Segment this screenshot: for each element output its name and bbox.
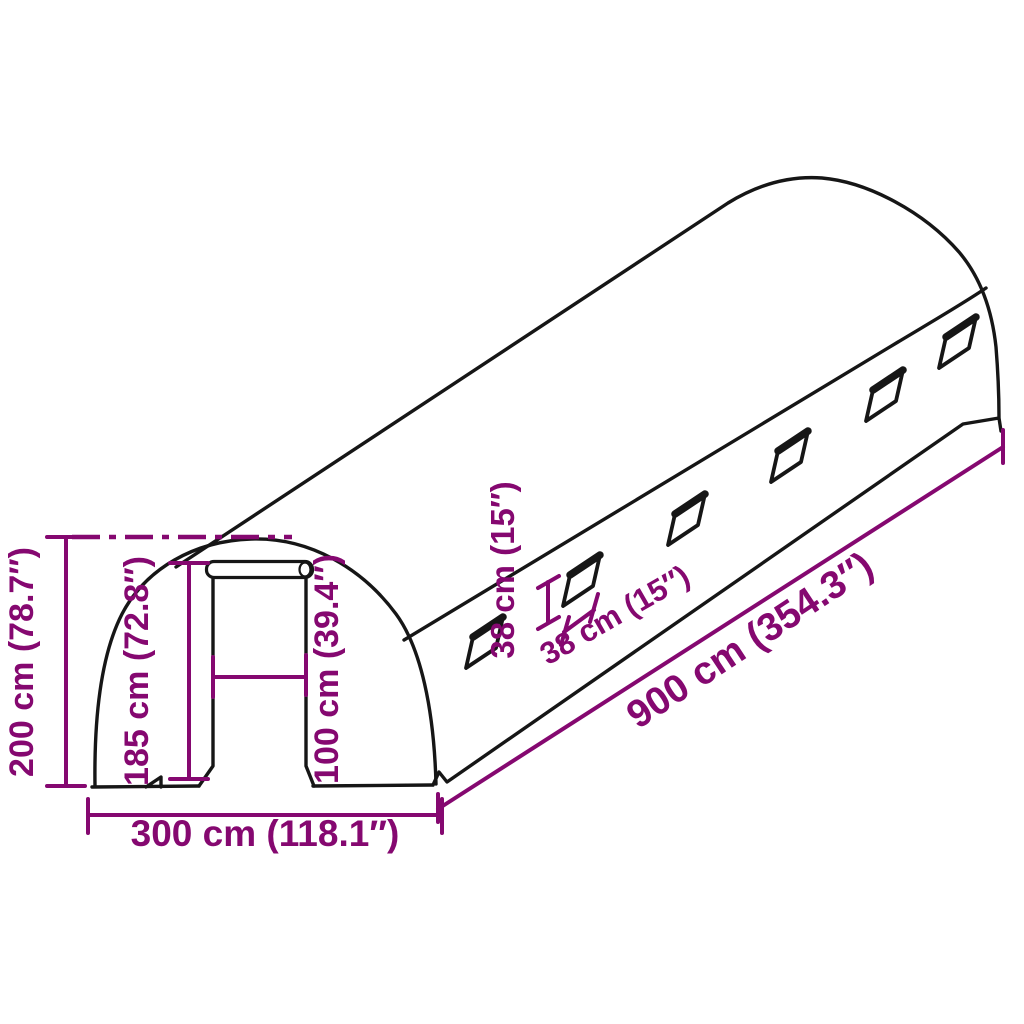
tunnel-outline	[92, 178, 1001, 787]
window-5	[866, 370, 903, 421]
label-door-height: 185 cm (72.8″)	[118, 556, 156, 786]
window-4	[771, 431, 808, 482]
dim-door-width-line	[213, 655, 306, 697]
window-2	[563, 555, 600, 606]
door-frame	[199, 578, 314, 786]
side-windows	[466, 317, 976, 668]
ridge-and-back-arch	[176, 178, 999, 567]
dim-door-height-line	[170, 563, 208, 779]
dim-total-height-line	[47, 537, 85, 786]
front-ground-right	[313, 785, 433, 786]
label-total-height: 200 cm (78.7″)	[3, 547, 41, 777]
greenhouse-diagram-canvas: 200 cm (78.7″) 185 cm (72.8″) 100 cm (39…	[0, 0, 1024, 1024]
dim-window-height-marker	[538, 576, 559, 629]
window-3	[668, 494, 705, 545]
dim-length-line	[438, 430, 1003, 822]
window-6	[939, 317, 976, 368]
label-front-width: 300 cm (118.1″)	[131, 813, 400, 854]
label-window-height: 38 cm (15″)	[484, 481, 521, 658]
door-roller	[207, 562, 313, 578]
label-door-width: 100 cm (39.4″)	[308, 554, 346, 784]
dimension-diagram: 200 cm (78.7″) 185 cm (72.8″) 100 cm (39…	[0, 0, 1024, 1024]
dimension-lines	[47, 430, 1003, 833]
